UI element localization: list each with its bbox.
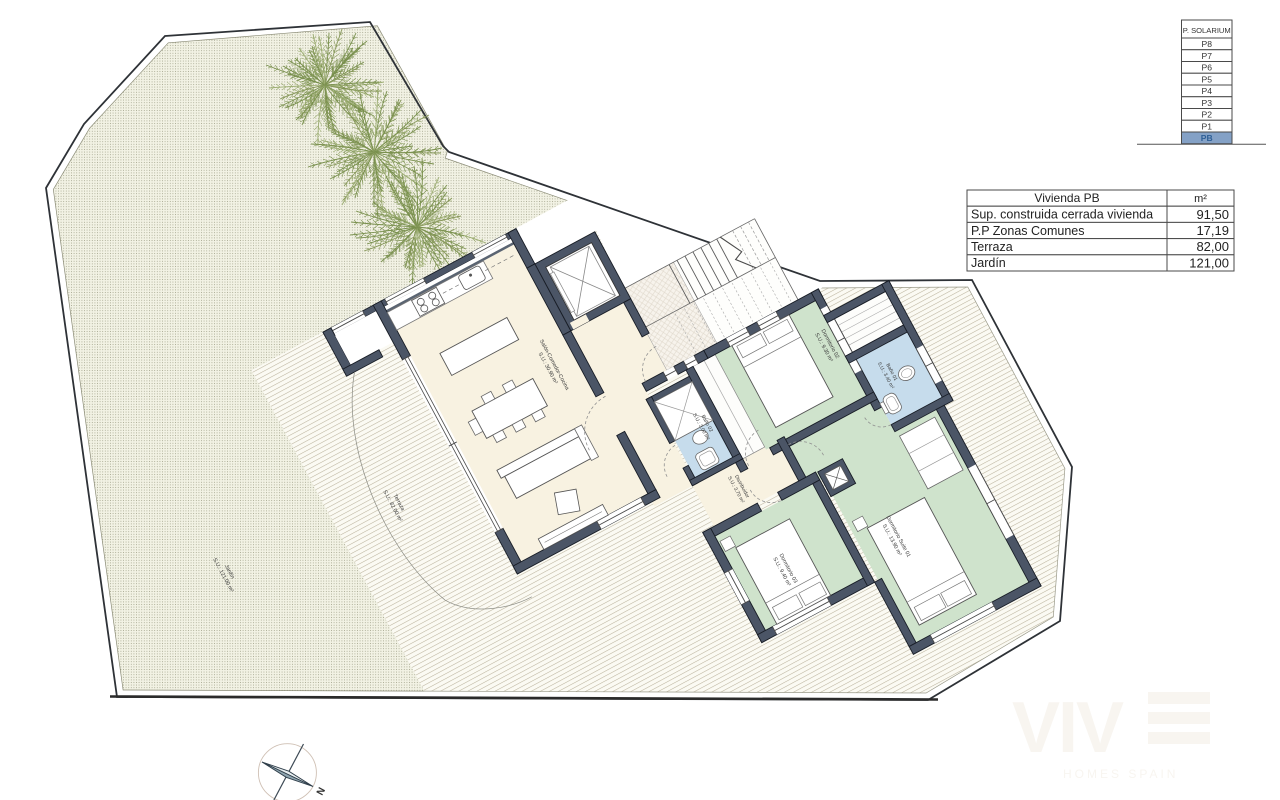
svg-text:P8: P8 <box>1201 39 1212 49</box>
svg-text:P4: P4 <box>1201 86 1212 96</box>
svg-text:Vivienda PB: Vivienda PB <box>1034 191 1099 205</box>
svg-text:HOMES SPAIN: HOMES SPAIN <box>1063 767 1178 781</box>
svg-text:P6: P6 <box>1201 63 1212 73</box>
svg-text:121,00: 121,00 <box>1189 255 1229 270</box>
svg-text:VIV: VIV <box>1012 688 1124 768</box>
svg-text:P3: P3 <box>1201 98 1212 108</box>
svg-text:P2: P2 <box>1201 110 1212 120</box>
svg-text:m²: m² <box>1194 193 1207 205</box>
svg-text:Sup. construida cerrada vivien: Sup. construida cerrada vivienda <box>971 208 1153 222</box>
svg-text:P. SOLARIUM: P. SOLARIUM <box>1183 26 1231 35</box>
svg-text:91,50: 91,50 <box>1196 207 1229 222</box>
svg-text:PB: PB <box>1201 133 1213 143</box>
svg-text:P1: P1 <box>1201 121 1212 131</box>
svg-text:Jardín: Jardín <box>971 256 1006 270</box>
svg-text:P5: P5 <box>1201 74 1212 84</box>
svg-text:P7: P7 <box>1201 51 1212 61</box>
svg-text:Terraza: Terraza <box>971 240 1013 254</box>
svg-text:P.P Zonas Comunes: P.P Zonas Comunes <box>971 224 1085 238</box>
svg-text:17,19: 17,19 <box>1196 223 1229 238</box>
svg-text:82,00: 82,00 <box>1196 239 1229 254</box>
